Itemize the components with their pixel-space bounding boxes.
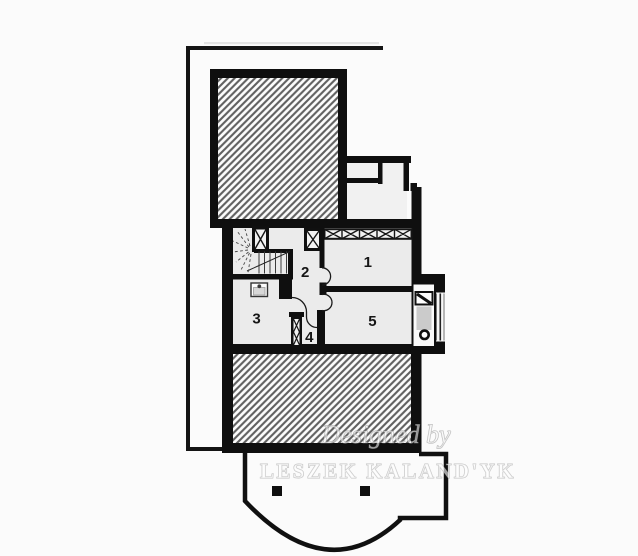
svg-text:5: 5 [368, 313, 376, 330]
svg-text:3: 3 [252, 311, 260, 328]
svg-text:1: 1 [364, 254, 372, 271]
svg-text:2: 2 [301, 264, 309, 281]
svg-text:Designed by: Designed by [320, 420, 451, 449]
svg-text:4: 4 [305, 329, 314, 346]
svg-text:LESZEK KALAND'YK: LESZEK KALAND'YK [260, 459, 516, 483]
